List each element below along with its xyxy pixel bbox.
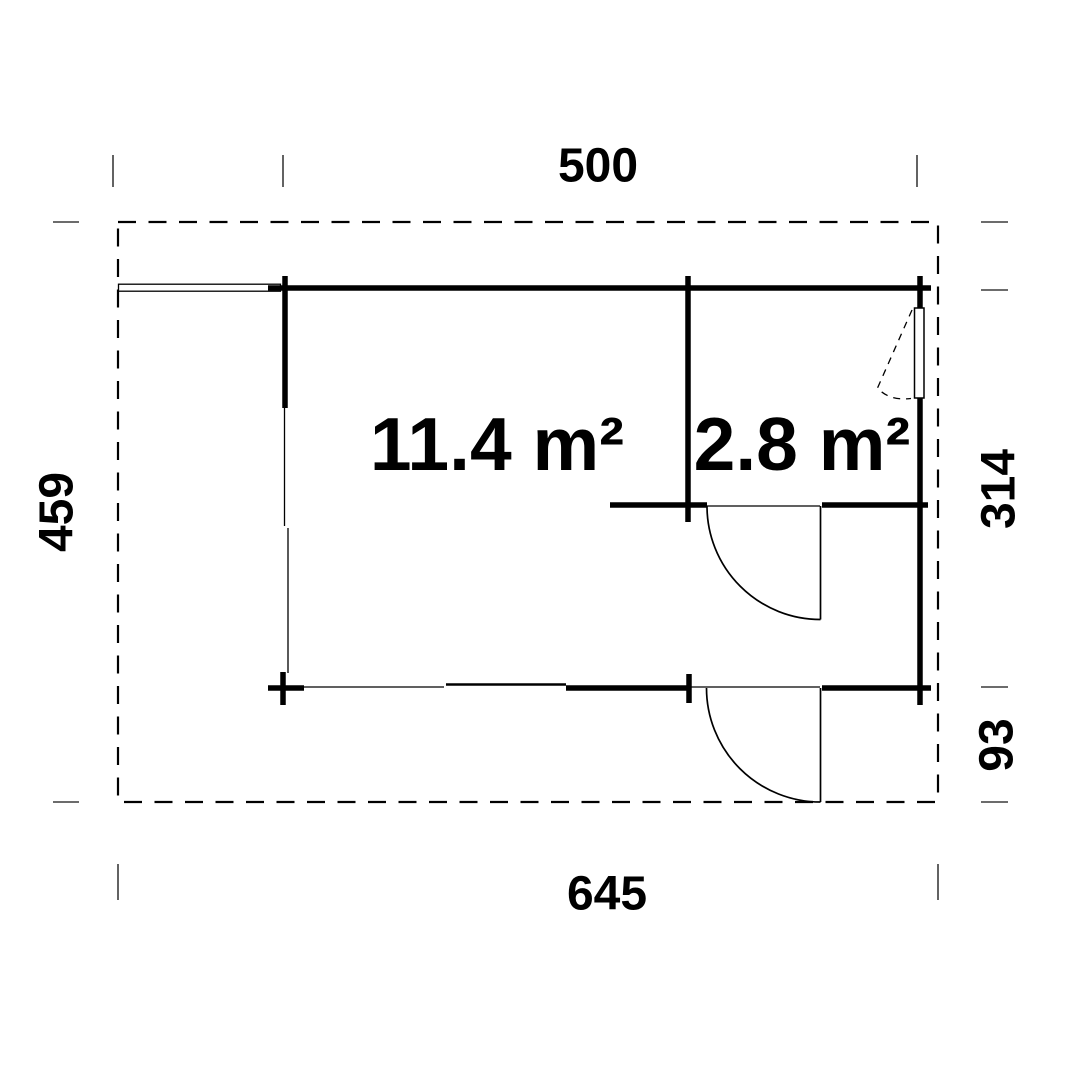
dimension-top: 500 bbox=[558, 139, 638, 194]
window bbox=[878, 308, 925, 399]
dimension-bottom: 645 bbox=[567, 867, 647, 922]
room-label-main: 11.4 m² bbox=[370, 401, 624, 487]
dimension-right-upper: 314 bbox=[972, 449, 1027, 529]
exterior-door bbox=[707, 688, 821, 802]
walls bbox=[268, 276, 931, 705]
side-beam bbox=[119, 284, 281, 291]
floor-plan: 500 645 459 314 93 11.4 m² 2.8 m² bbox=[0, 0, 1074, 1074]
room-label-small: 2.8 m² bbox=[694, 401, 911, 487]
floor-plan-drawing bbox=[0, 0, 1074, 1074]
dimension-ticks bbox=[53, 155, 1008, 900]
dimension-left: 459 bbox=[30, 472, 85, 552]
window-frame bbox=[915, 308, 925, 398]
interior-door-swing-icon bbox=[707, 506, 821, 620]
dimension-right-lower: 93 bbox=[970, 718, 1025, 771]
exterior-door-swing-icon bbox=[707, 688, 821, 802]
overhang-outline bbox=[118, 222, 938, 802]
window-swing-icon bbox=[878, 310, 913, 399]
interior-door bbox=[707, 506, 821, 620]
